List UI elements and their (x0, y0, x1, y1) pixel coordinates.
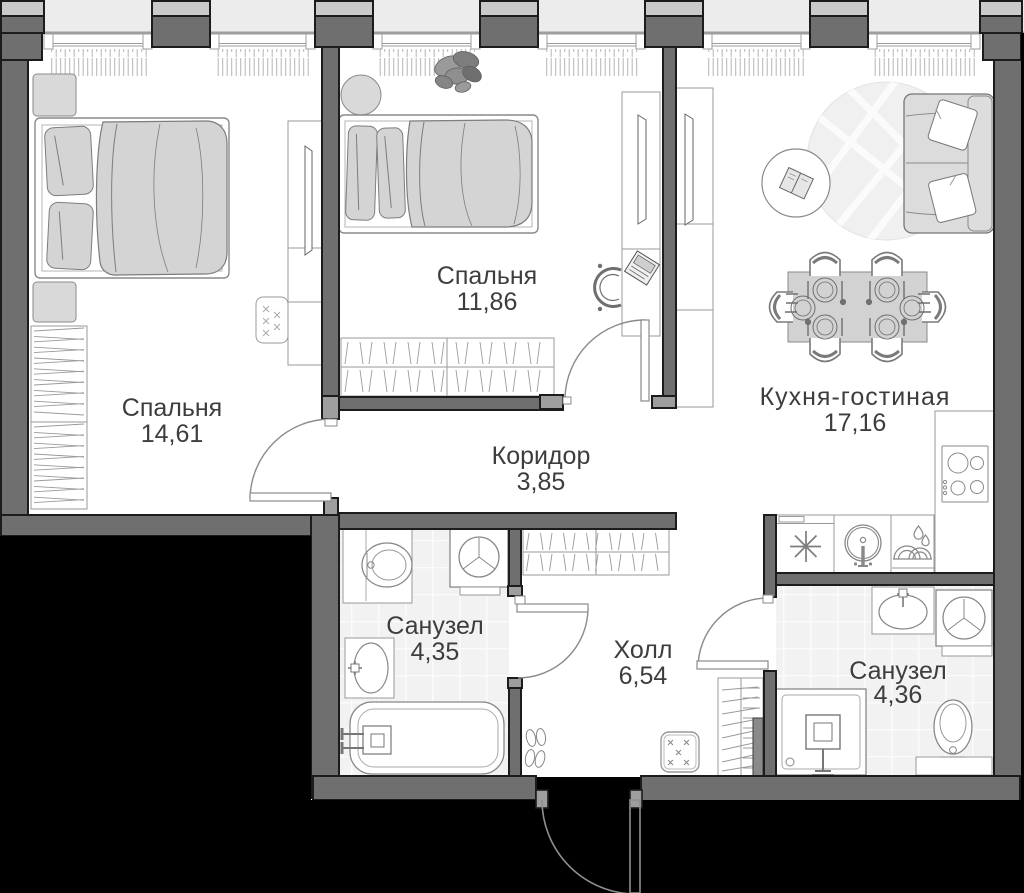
svg-text:4,35: 4,35 (411, 638, 460, 666)
svg-text:Холл: Холл (614, 636, 673, 664)
svg-text:Спальня: Спальня (437, 262, 537, 290)
svg-text:Кухня-гостиная: Кухня-гостиная (760, 383, 951, 411)
svg-text:Спальня: Спальня (122, 394, 222, 422)
svg-text:4,36: 4,36 (874, 681, 923, 709)
svg-text:11,86: 11,86 (457, 288, 518, 316)
svg-text:3,85: 3,85 (517, 468, 566, 496)
svg-text:6,54: 6,54 (619, 662, 668, 690)
svg-text:17,16: 17,16 (824, 409, 887, 437)
svg-text:Коридор: Коридор (492, 442, 591, 470)
svg-text:14,61: 14,61 (141, 420, 204, 448)
svg-text:Санузел: Санузел (386, 612, 483, 640)
